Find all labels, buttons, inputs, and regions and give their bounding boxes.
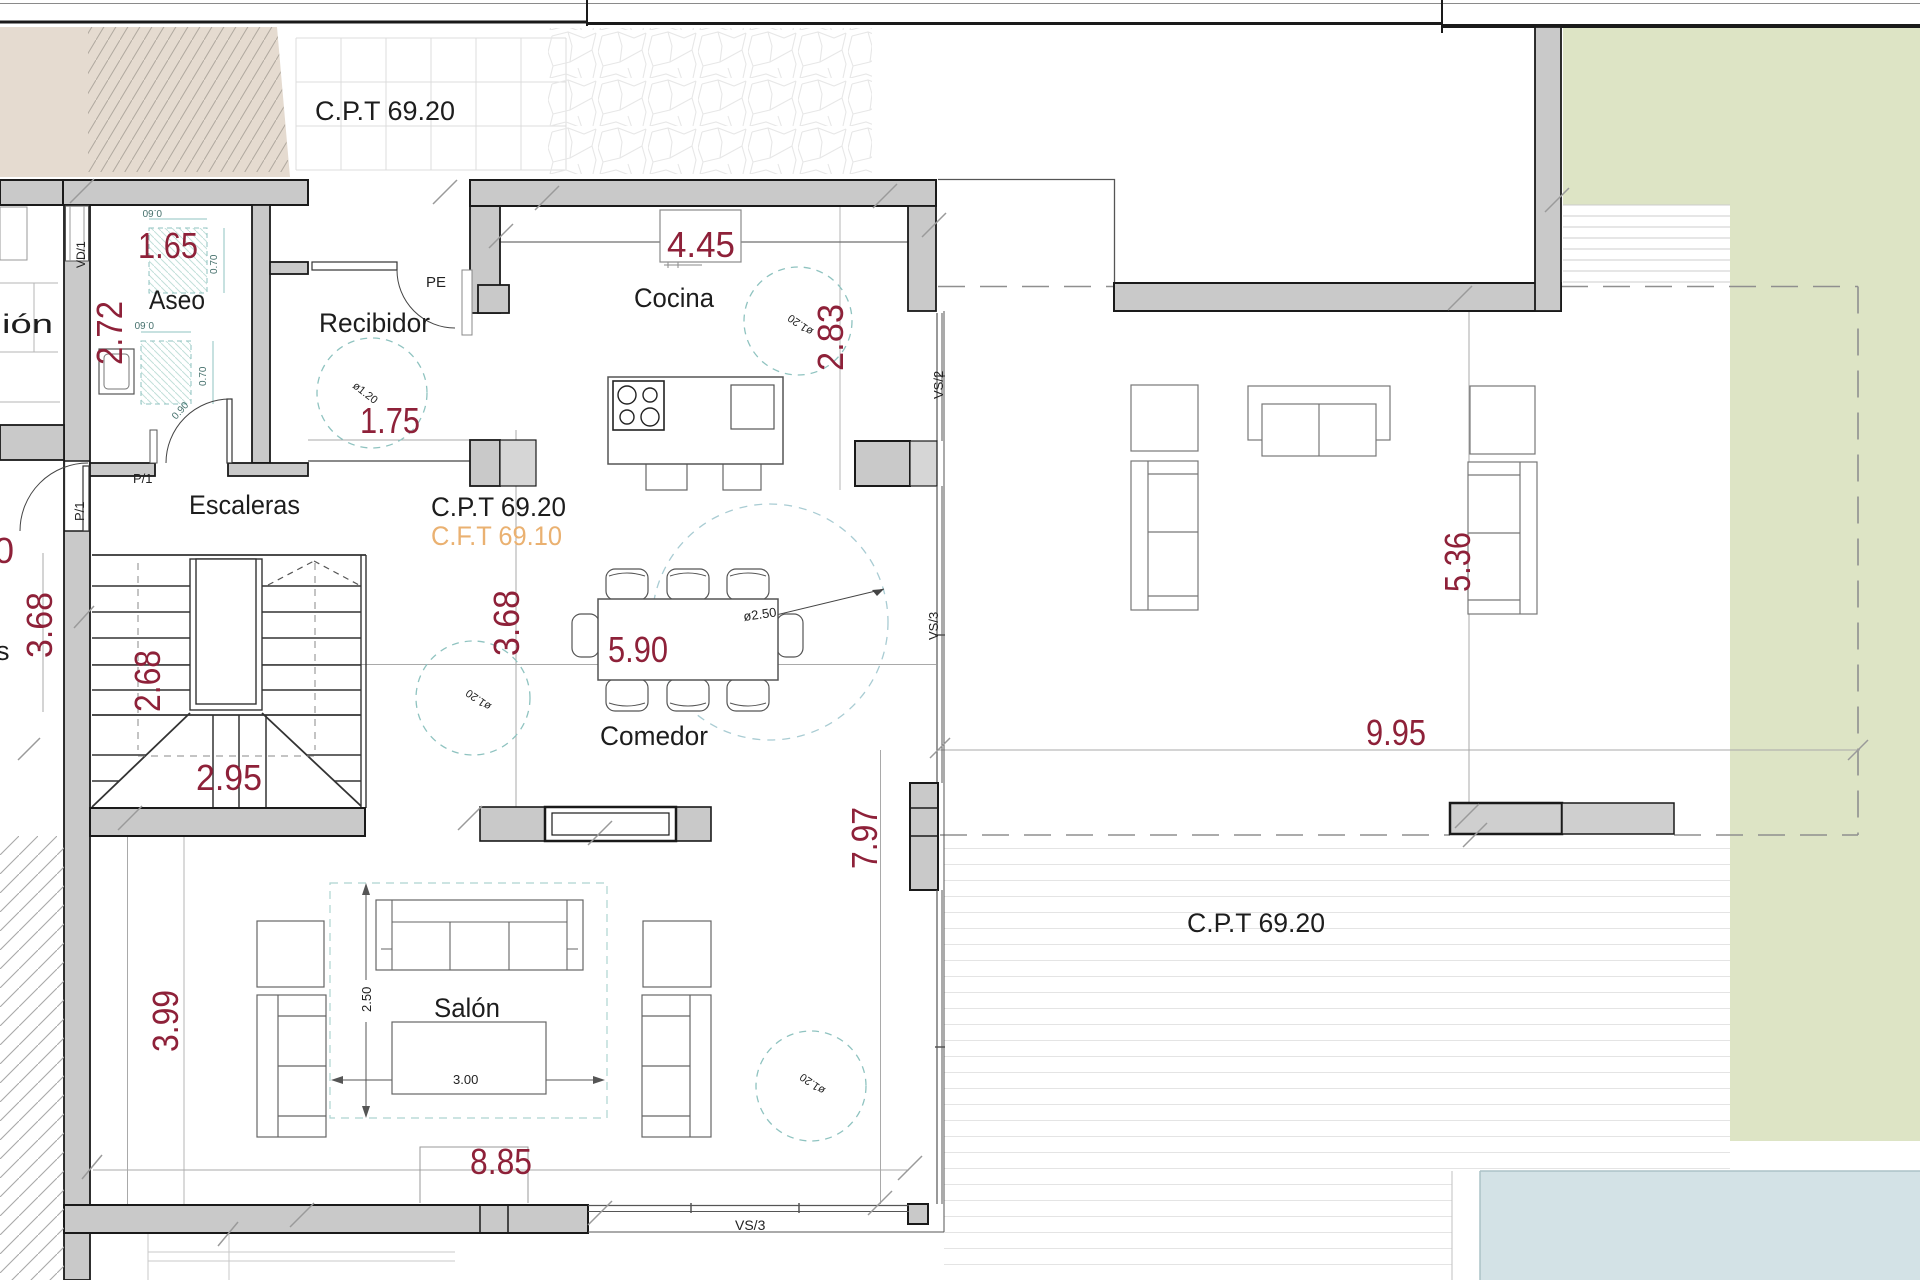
svg-text:2.68: 2.68 xyxy=(127,650,168,712)
svg-text:P/1: P/1 xyxy=(72,501,87,521)
svg-text:3.68: 3.68 xyxy=(486,590,527,656)
svg-text:3.00: 3.00 xyxy=(453,1072,478,1087)
svg-text:VS/3: VS/3 xyxy=(926,612,941,640)
svg-text:Cocina: Cocina xyxy=(634,283,715,313)
svg-text:s: s xyxy=(0,636,10,666)
svg-text:C.P.T 69.20: C.P.T 69.20 xyxy=(315,96,455,126)
svg-text:1.75: 1.75 xyxy=(360,400,420,441)
svg-text:VS/2: VS/2 xyxy=(931,371,946,399)
svg-text:C.P.T 69.20: C.P.T 69.20 xyxy=(431,492,566,522)
svg-text:Salón: Salón xyxy=(434,993,500,1023)
svg-text:9.95: 9.95 xyxy=(1366,712,1426,753)
svg-text:5.90: 5.90 xyxy=(608,629,668,670)
svg-text:2.83: 2.83 xyxy=(810,304,851,371)
svg-text:Aseo: Aseo xyxy=(149,285,205,315)
svg-text:Escaleras: Escaleras xyxy=(189,490,300,520)
svg-text:8.85: 8.85 xyxy=(470,1141,532,1182)
svg-text:C.F.T 69.10: C.F.T 69.10 xyxy=(431,521,562,551)
svg-text:VS/3: VS/3 xyxy=(735,1217,766,1233)
svg-text:2.72: 2.72 xyxy=(89,301,130,365)
svg-text:2.50: 2.50 xyxy=(359,987,374,1012)
svg-text:2.95: 2.95 xyxy=(196,757,262,798)
svg-text:0.70: 0.70 xyxy=(209,254,220,274)
svg-text:1.65: 1.65 xyxy=(138,225,198,266)
svg-text:C.P.T 69.20: C.P.T 69.20 xyxy=(1187,908,1325,938)
svg-text:P/1: P/1 xyxy=(133,471,153,486)
svg-text:0: 0 xyxy=(0,530,14,571)
svg-text:0.60: 0.60 xyxy=(134,319,154,330)
svg-text:0.70: 0.70 xyxy=(198,366,209,386)
svg-text:3.68: 3.68 xyxy=(19,592,60,658)
svg-text:5.36: 5.36 xyxy=(1437,532,1478,592)
svg-text:4.45: 4.45 xyxy=(667,224,735,265)
svg-text:VD/1: VD/1 xyxy=(74,241,88,268)
svg-text:0.60: 0.60 xyxy=(142,207,162,218)
svg-text:7.97: 7.97 xyxy=(844,807,885,869)
svg-text:3.99: 3.99 xyxy=(145,990,186,1052)
svg-text:ión: ión xyxy=(2,309,53,339)
svg-text:Comedor: Comedor xyxy=(600,721,708,751)
svg-text:PE: PE xyxy=(426,274,446,291)
svg-text:Recibidor: Recibidor xyxy=(319,308,430,338)
